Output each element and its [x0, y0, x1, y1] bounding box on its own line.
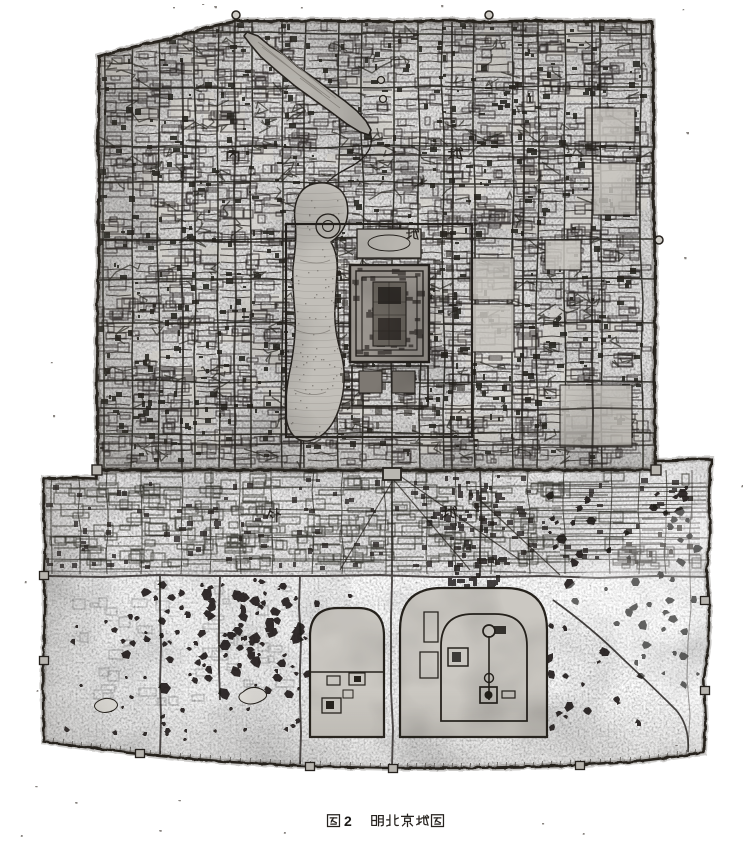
svg-text:2: 2: [344, 813, 352, 829]
